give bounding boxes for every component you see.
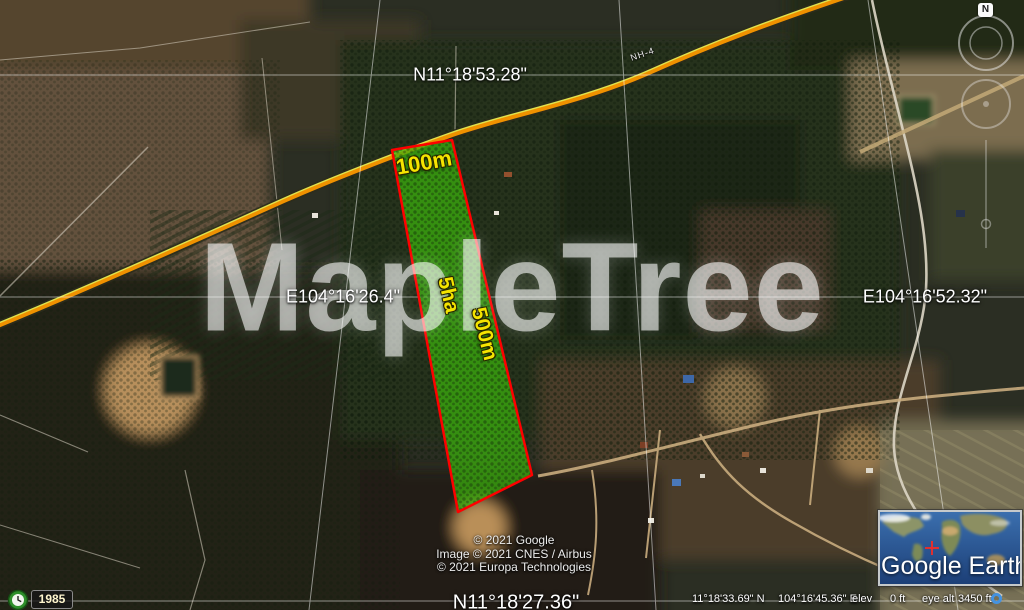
copyright-line-1: © 2021 Google	[436, 534, 592, 548]
copyright-line-2: Image © 2021 CNES / Airbus	[436, 548, 592, 562]
copyright-attribution: © 2021 Google Image © 2021 CNES / Airbus…	[436, 534, 592, 575]
google-earth-logo: Google Earth	[881, 552, 1021, 581]
nav-rings[interactable]	[946, 0, 1024, 260]
clock-icon	[7, 589, 29, 610]
elev-label: elev	[852, 593, 872, 605]
pointer-latitude: 11°18'33.69" N	[692, 593, 765, 605]
latitude-label-top: N11°18'53.28"	[413, 65, 527, 86]
navigation-controls[interactable]: N	[946, 0, 1024, 260]
longitude-label-left: E104°16'26.4"	[286, 287, 400, 308]
latitude-label-bottom: N11°18'27.36"	[453, 592, 579, 610]
eye-alt-label: eye alt	[922, 593, 954, 605]
eye-alt-value: 3450 ft	[958, 593, 992, 605]
compass-north-badge[interactable]: N	[978, 3, 993, 17]
pointer-longitude: 104°16'45.36" E	[778, 593, 857, 605]
copyright-line-3: © 2021 Europa Technologies	[436, 561, 592, 575]
streaming-progress-indicator	[991, 593, 1002, 604]
google-earth-viewport: MapleTree 100m 5ha 500m N11°18'53.28" E1…	[0, 0, 1024, 610]
imagery-year-badge[interactable]: 1985	[31, 590, 73, 609]
elev-value: 0 ft	[890, 593, 905, 605]
longitude-label-right: E104°16'52.32"	[863, 287, 987, 308]
overview-map-inset[interactable]: Google Earth	[878, 510, 1022, 586]
history-clock-button[interactable]	[7, 589, 29, 610]
